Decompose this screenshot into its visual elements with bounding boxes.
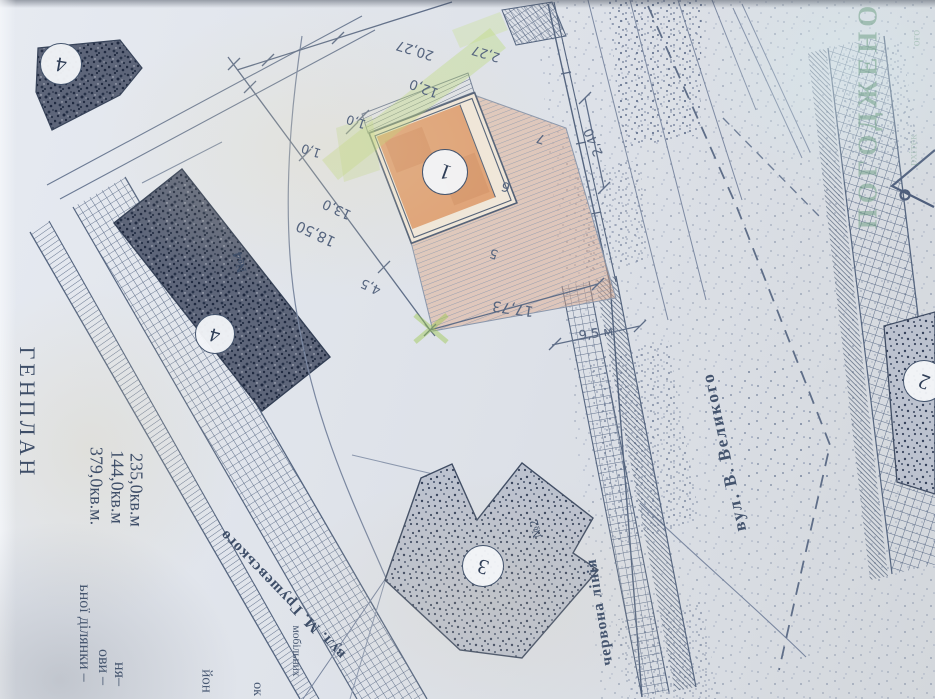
area-value-building: 144,0кв.м	[107, 450, 128, 524]
edge-text-fragment: мобільних	[290, 625, 302, 676]
area-label-green: ня–	[110, 662, 128, 686]
stamp-fragment: рхітек	[906, 134, 921, 166]
stamp-fragment: ого	[909, 30, 924, 47]
building-circle-1: 1	[422, 149, 468, 195]
area-label-plot: ьної ділянки –	[75, 584, 93, 681]
area-value-plot: 379,0кв.м.	[86, 447, 107, 525]
building-circle-4: 4	[195, 314, 235, 354]
building-circle-3: 3	[462, 545, 504, 587]
building-circle-4-fragment: 4	[40, 43, 82, 85]
area-value-green: 235,0кв.м	[126, 453, 147, 527]
site-plan-drawing	[0, 0, 935, 699]
genplan-photo: ГЕНПЛАН 379,0кв.м. 144,0кв.м 235,0кв.м ь…	[0, 0, 935, 699]
approval-stamp: ПОГОДЖЕНО	[853, 1, 884, 229]
edge-text-fragment: ок	[249, 682, 265, 696]
edge-text-fragment: йон	[198, 669, 215, 693]
plan-title: ГЕНПЛАН	[14, 347, 40, 480]
